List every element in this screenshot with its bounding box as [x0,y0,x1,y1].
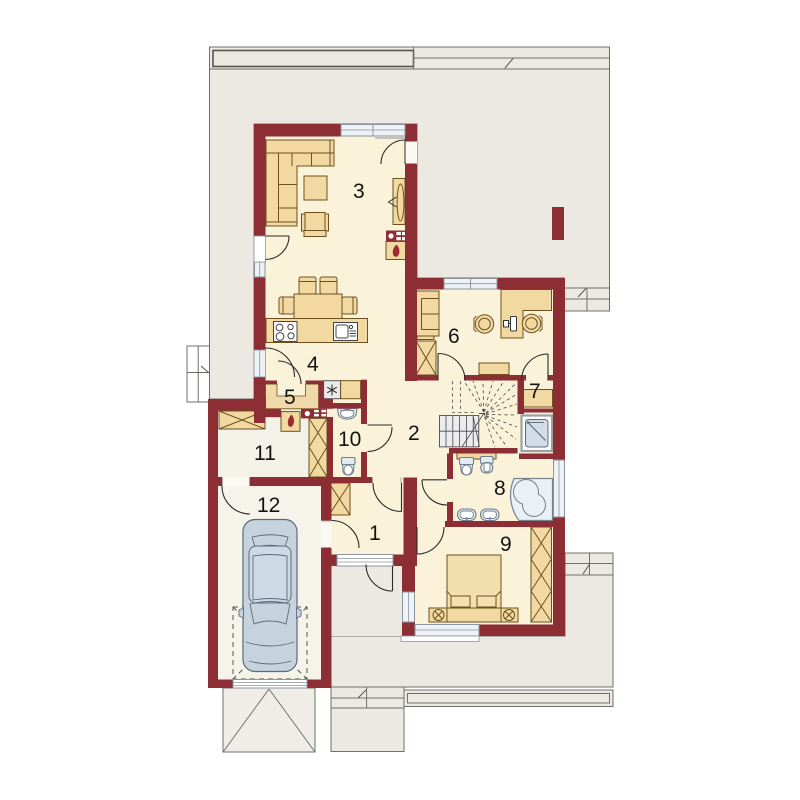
svg-text:2: 2 [408,422,420,445]
svg-text:5: 5 [284,386,296,409]
svg-text:8: 8 [494,477,506,500]
svg-text:3: 3 [353,180,365,203]
svg-text:9: 9 [500,533,512,556]
svg-text:1: 1 [369,522,381,545]
svg-text:4: 4 [307,353,319,376]
svg-text:7: 7 [529,380,541,403]
svg-text:6: 6 [448,325,460,348]
svg-text:12: 12 [257,494,280,517]
svg-text:11: 11 [254,442,276,465]
svg-text:10: 10 [338,428,361,451]
